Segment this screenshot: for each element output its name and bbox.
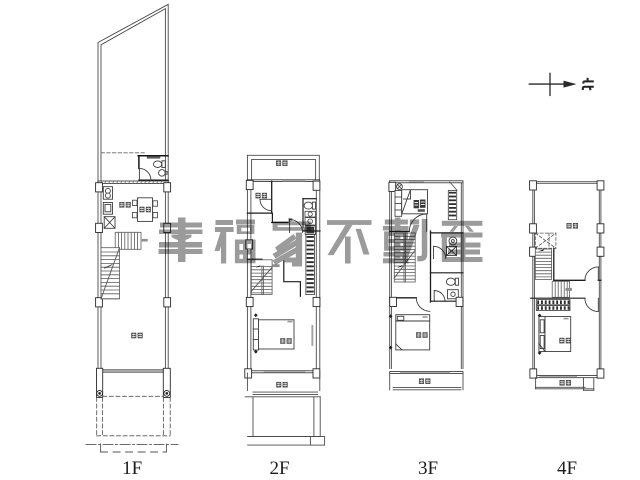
svg-text:3F: 3F (418, 458, 438, 479)
svg-text:2F: 2F (269, 458, 289, 479)
svg-text:4F: 4F (557, 458, 577, 479)
svg-text:1F: 1F (122, 458, 142, 479)
